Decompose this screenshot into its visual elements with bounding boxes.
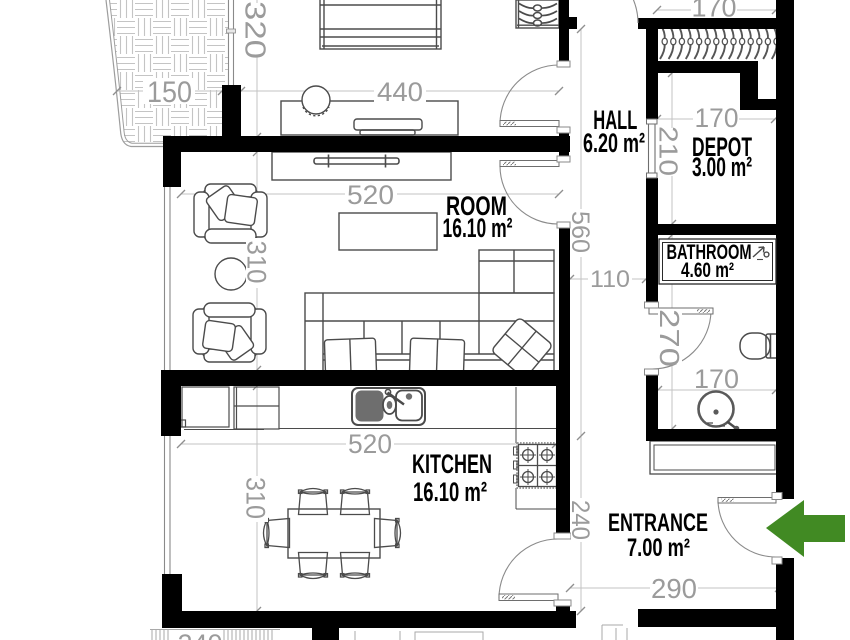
svg-text:16.10 m²: 16.10 m² — [413, 477, 487, 507]
svg-text:170: 170 — [692, 0, 737, 23]
svg-text:ENTRANCE: ENTRANCE — [608, 509, 708, 537]
svg-text:KITCHEN: KITCHEN — [412, 449, 492, 479]
svg-text:440: 440 — [377, 77, 423, 107]
svg-text:560: 560 — [566, 211, 594, 253]
svg-text:150: 150 — [147, 76, 192, 109]
svg-text:6.20 m²: 6.20 m² — [583, 128, 645, 158]
svg-text:240: 240 — [178, 629, 223, 640]
svg-text:110: 110 — [590, 266, 630, 293]
svg-text:4.60 m²: 4.60 m² — [681, 259, 734, 282]
svg-text:3.00 m²: 3.00 m² — [692, 152, 752, 182]
svg-text:240: 240 — [566, 500, 594, 540]
svg-text:16.10 m²: 16.10 m² — [443, 213, 513, 243]
svg-text:7.00 m²: 7.00 m² — [627, 534, 690, 562]
svg-text:170: 170 — [695, 103, 739, 133]
svg-text:520: 520 — [347, 180, 394, 210]
svg-text:310: 310 — [240, 477, 270, 519]
svg-text:270: 270 — [654, 309, 685, 367]
svg-text:310: 310 — [241, 241, 271, 284]
svg-text:170: 170 — [694, 364, 739, 394]
svg-text:210: 210 — [654, 126, 684, 176]
svg-text:320: 320 — [239, 1, 271, 59]
svg-text:520: 520 — [348, 429, 392, 459]
svg-text:290: 290 — [651, 573, 697, 604]
